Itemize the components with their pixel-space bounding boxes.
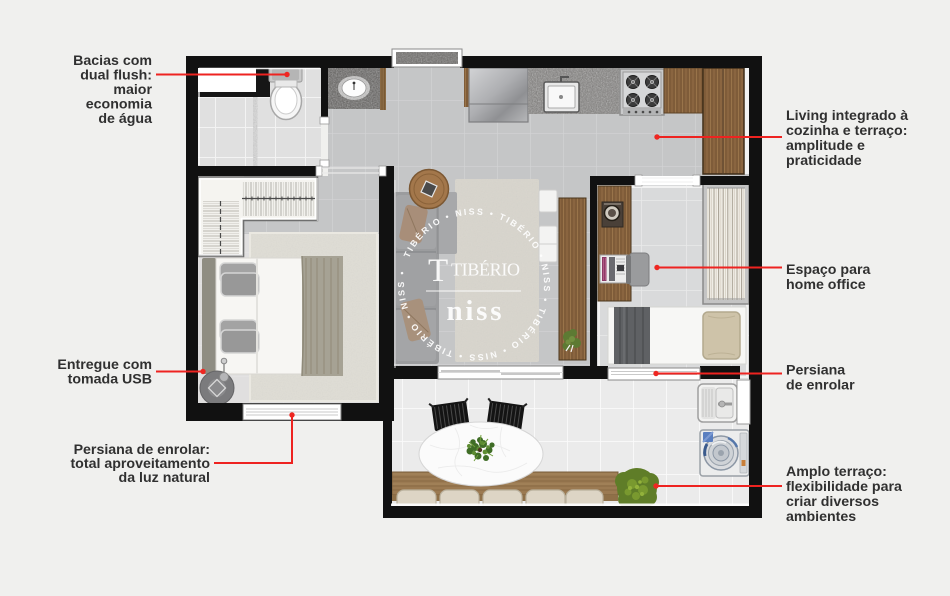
svg-text:tomada USB: tomada USB <box>68 371 152 387</box>
svg-text:home office: home office <box>786 277 866 293</box>
svg-text:Living integrado à: Living integrado à <box>786 108 908 124</box>
svg-text:praticidade: praticidade <box>786 153 862 169</box>
svg-text:T: T <box>428 253 448 289</box>
svg-text:da luz natural: da luz natural <box>119 470 210 486</box>
svg-text:ambientes: ambientes <box>786 509 856 525</box>
svg-text:flexibilidade para: flexibilidade para <box>786 479 902 495</box>
svg-text:criar diversos: criar diversos <box>786 494 879 510</box>
svg-text:TIBÉRIO: TIBÉRIO <box>451 259 520 280</box>
svg-text:Persiana: Persiana <box>786 362 845 378</box>
svg-text:cozinha e terraço:: cozinha e terraço: <box>786 123 907 139</box>
svg-text:de água: de água <box>98 111 152 127</box>
svg-text:amplitude e: amplitude e <box>786 138 865 154</box>
svg-text:de enrolar: de enrolar <box>786 377 855 393</box>
svg-text:Espaço para: Espaço para <box>786 262 870 278</box>
svg-text:Amplo terraço:: Amplo terraço: <box>786 464 887 480</box>
